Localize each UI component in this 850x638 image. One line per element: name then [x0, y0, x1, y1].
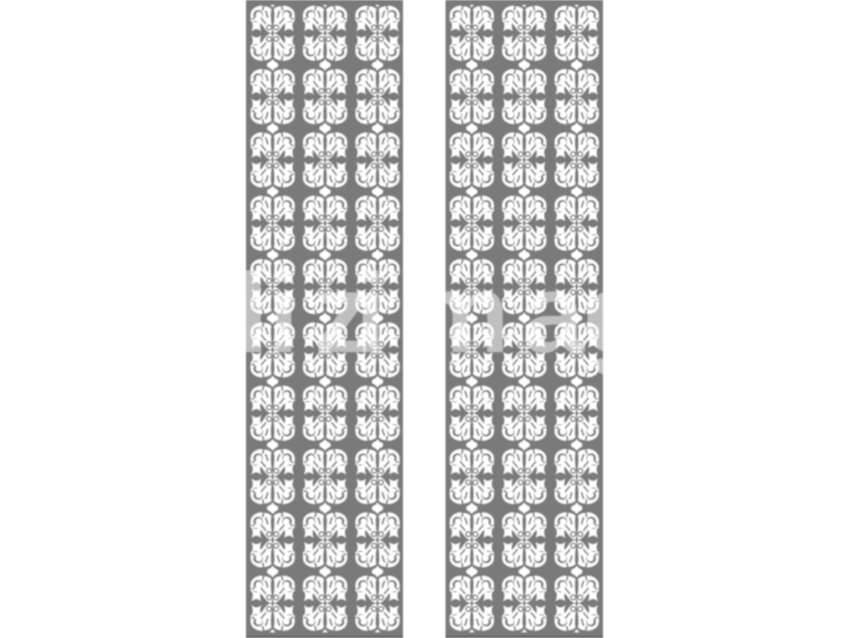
svg-text:a: a	[522, 251, 585, 376]
svg-text:d: d	[200, 251, 268, 376]
svg-text:m: m	[410, 251, 510, 376]
svg-text:g: g	[583, 251, 651, 376]
svg-text:i: i	[355, 251, 386, 376]
svg-text:i: i	[268, 251, 299, 376]
